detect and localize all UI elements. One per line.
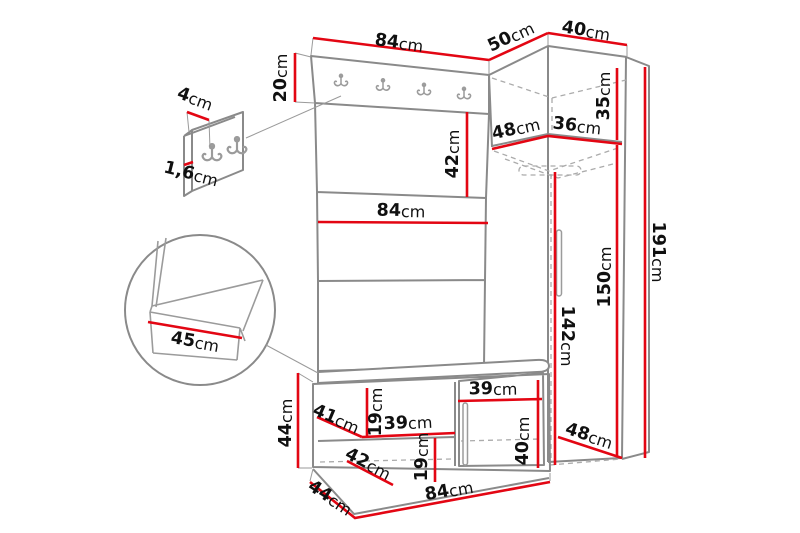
- coat-hook-icon: [203, 144, 222, 160]
- coat-hooks: [334, 74, 470, 98]
- hanging-rail-dashed: [519, 166, 581, 175]
- dim-label-bench-door-height: 40cm: [513, 417, 533, 466]
- diagram-canvas: 4cm 1,6cm 20cm 84cm 50cm 40cm 35cm 48cm …: [0, 0, 800, 533]
- wardrobe-door-handle: [557, 230, 562, 296]
- dim-label-wardrobe-top-width: 40cm: [560, 17, 611, 44]
- bench-door-handle: [463, 403, 468, 465]
- dim-label-top-cabinet-height: 35cm: [594, 72, 614, 121]
- dim-label-bench-shelf-depth: 41cm: [310, 400, 363, 437]
- dim-label-hook-panel-detail-width: 4cm: [174, 83, 215, 114]
- dim-label-bench-door-width: 39cm: [468, 379, 517, 400]
- coat-hook-icon: [376, 79, 389, 90]
- dim-label-wardrobe-door-height: 142cm: [557, 306, 577, 367]
- dim-label-panel-width-top: 84cm: [374, 30, 425, 56]
- dim-label-total-height: 191cm: [648, 222, 668, 283]
- dim-label-bench-shelf-width: 39cm: [383, 412, 433, 435]
- dim-label-wardrobe-interior-height: 150cm: [595, 247, 615, 308]
- detail-circle: [125, 235, 275, 385]
- coat-hook-icon: [417, 83, 430, 94]
- dim-label-bench-lower-shelf-depth: 42cm: [342, 444, 395, 484]
- dim-label-panel-width-middle: 84cm: [376, 201, 425, 222]
- dim-label-panel-section-height: 42cm: [443, 130, 463, 179]
- furniture-dimension-diagram: 4cm 1,6cm 20cm 84cm 50cm 40cm 35cm 48cm …: [0, 0, 800, 533]
- seat-corner-detail-inset: [125, 235, 275, 385]
- dim-label-hook-strip-height: 20cm: [271, 54, 291, 103]
- coat-hook-icon: [334, 74, 347, 85]
- dim-label-bench-height: 44cm: [276, 399, 296, 448]
- coat-hook-icon: [457, 87, 470, 98]
- dim-label-bench-lower-gap-height: 19cm: [412, 433, 432, 482]
- dim-label-bench-bottom-depth: 44cm: [304, 476, 356, 519]
